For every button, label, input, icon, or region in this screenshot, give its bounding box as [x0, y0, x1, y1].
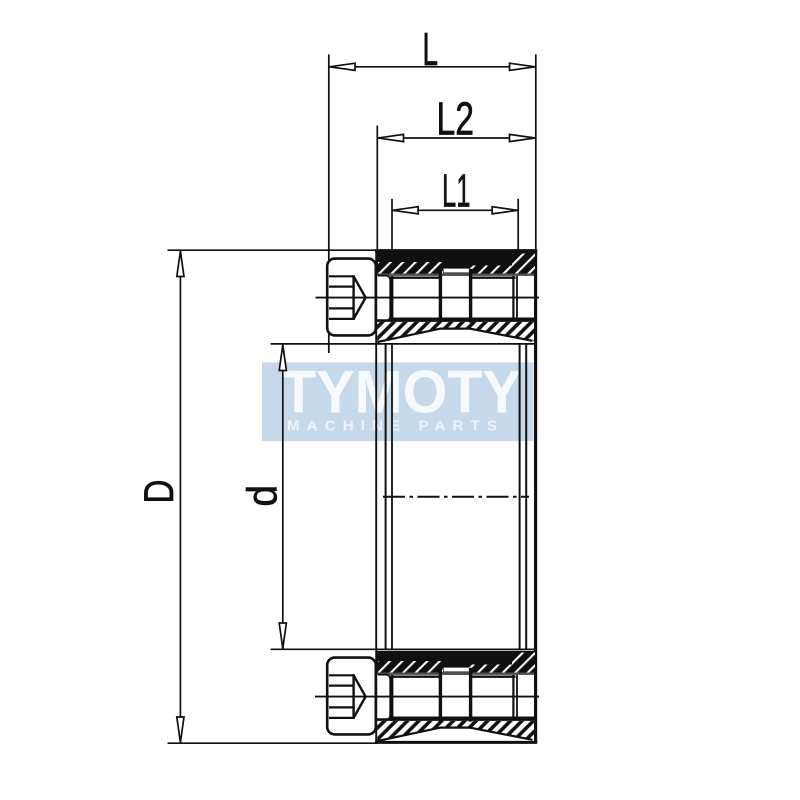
svg-text:L: L	[423, 23, 439, 75]
svg-text:L1: L1	[442, 164, 471, 216]
svg-text:MACHINE PARTS: MACHINE PARTS	[287, 418, 504, 435]
svg-text:d: d	[238, 485, 285, 507]
svg-text:D: D	[135, 480, 182, 504]
svg-text:L2: L2	[437, 92, 475, 144]
svg-text:TYMOTY: TYMOTY	[281, 358, 521, 426]
